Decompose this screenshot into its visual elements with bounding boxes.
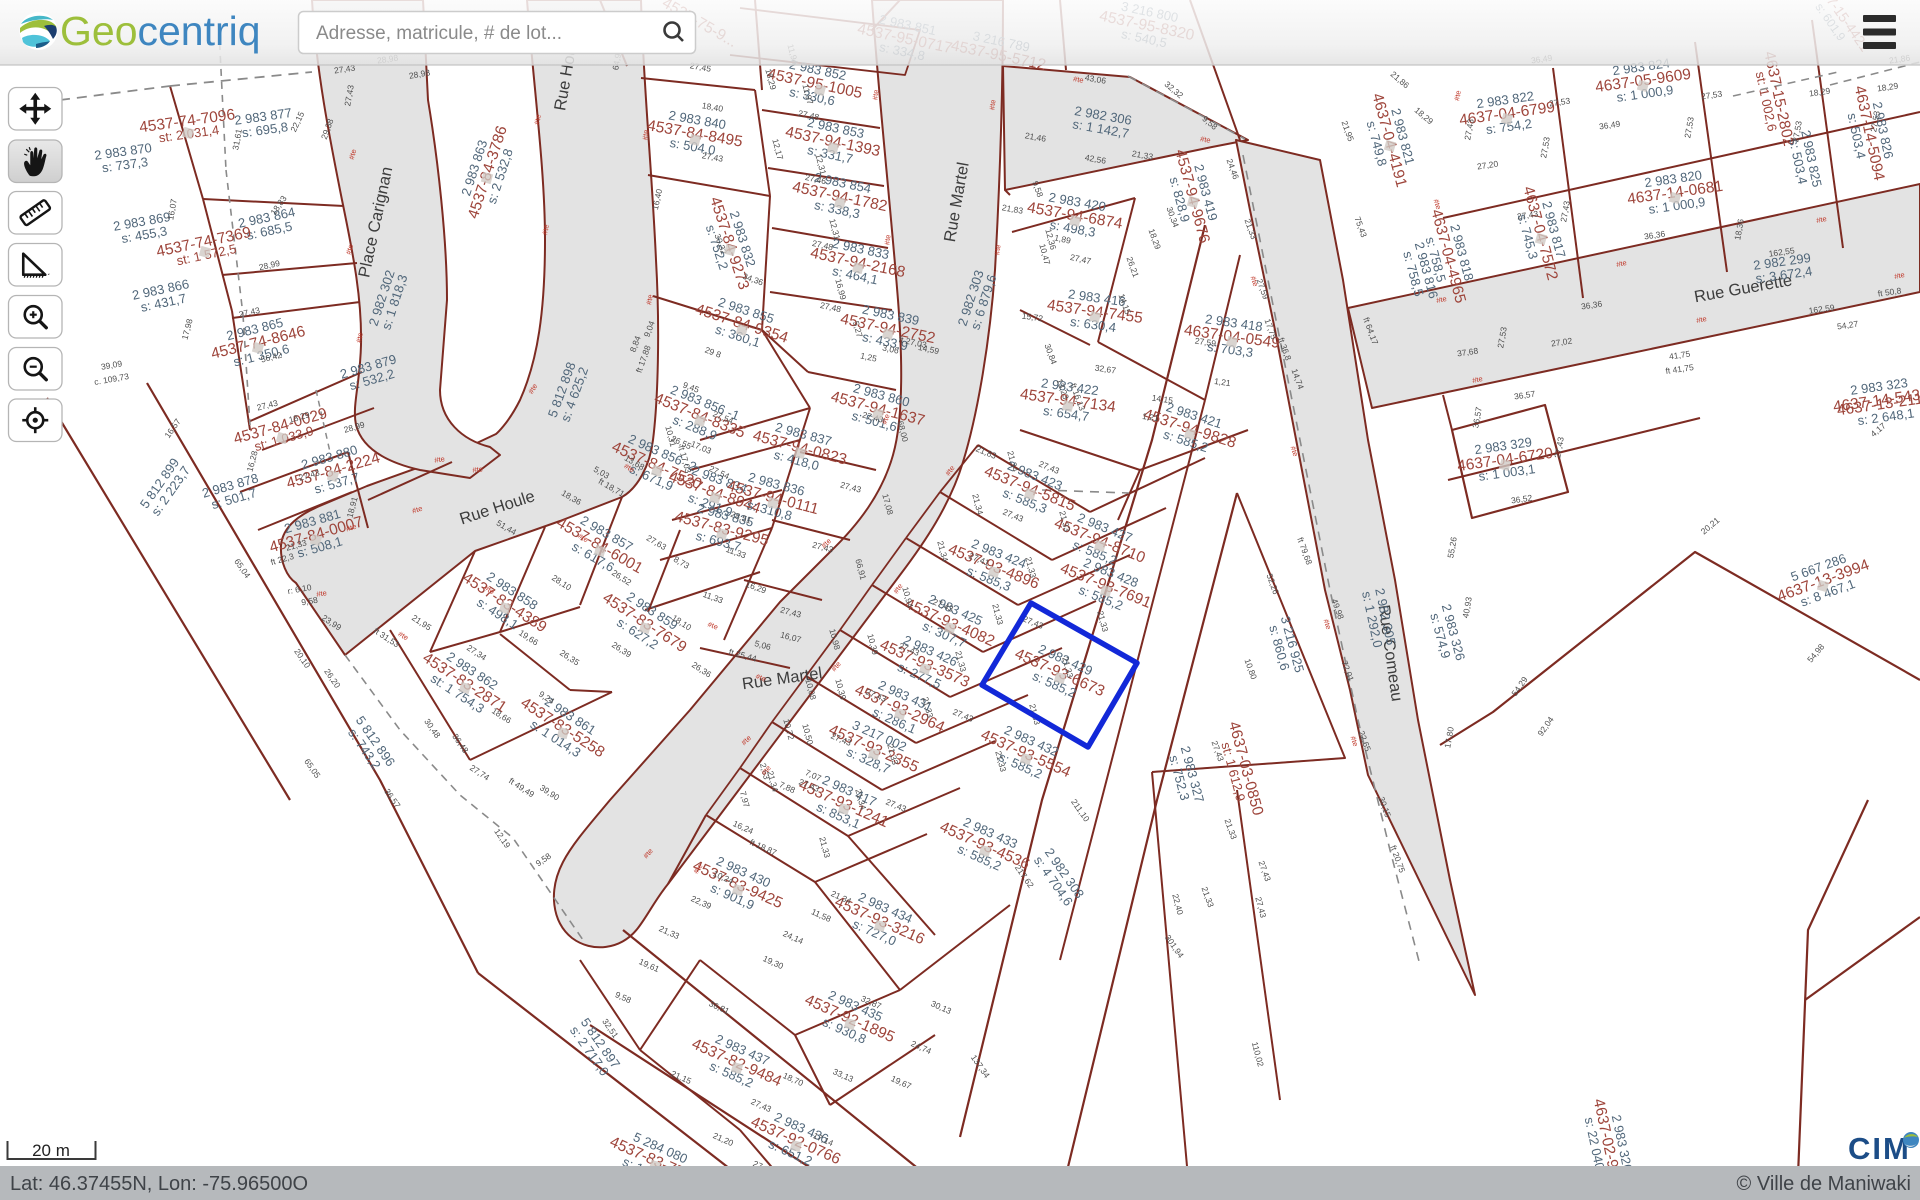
svg-text:#te: #te: [993, 244, 1003, 255]
svg-text:Lat: 46.37455N, Lon: -75.96500: Lat: 46.37455N, Lon: -75.96500O: [10, 1173, 308, 1195]
svg-text:#te: #te: [1073, 74, 1085, 85]
svg-text:© Ville de Maniwaki: © Ville de Maniwaki: [1737, 1173, 1911, 1195]
svg-text:#te: #te: [472, 464, 484, 474]
svg-text:CIM: CIM: [1848, 1131, 1911, 1166]
svg-text:#te: #te: [354, 332, 365, 344]
svg-text:#te: #te: [988, 99, 998, 110]
svg-text:Adresse, matricule, # de lot..: Adresse, matricule, # de lot...: [316, 23, 562, 44]
svg-text:#te: #te: [316, 588, 328, 599]
svg-text:#te: #te: [883, 234, 893, 245]
svg-text:Geocentriq: Geocentriq: [60, 8, 261, 54]
svg-text:#te: #te: [532, 114, 543, 126]
svg-text:#te: #te: [434, 454, 446, 465]
svg-text:20 m: 20 m: [32, 1141, 70, 1160]
svg-text:#te: #te: [1200, 134, 1212, 145]
svg-text:#te: #te: [871, 89, 881, 100]
svg-text:#te: #te: [641, 129, 651, 140]
svg-text:#te: #te: [1452, 90, 1463, 102]
svg-text:#te: #te: [540, 224, 551, 236]
svg-text:#te: #te: [644, 294, 655, 306]
